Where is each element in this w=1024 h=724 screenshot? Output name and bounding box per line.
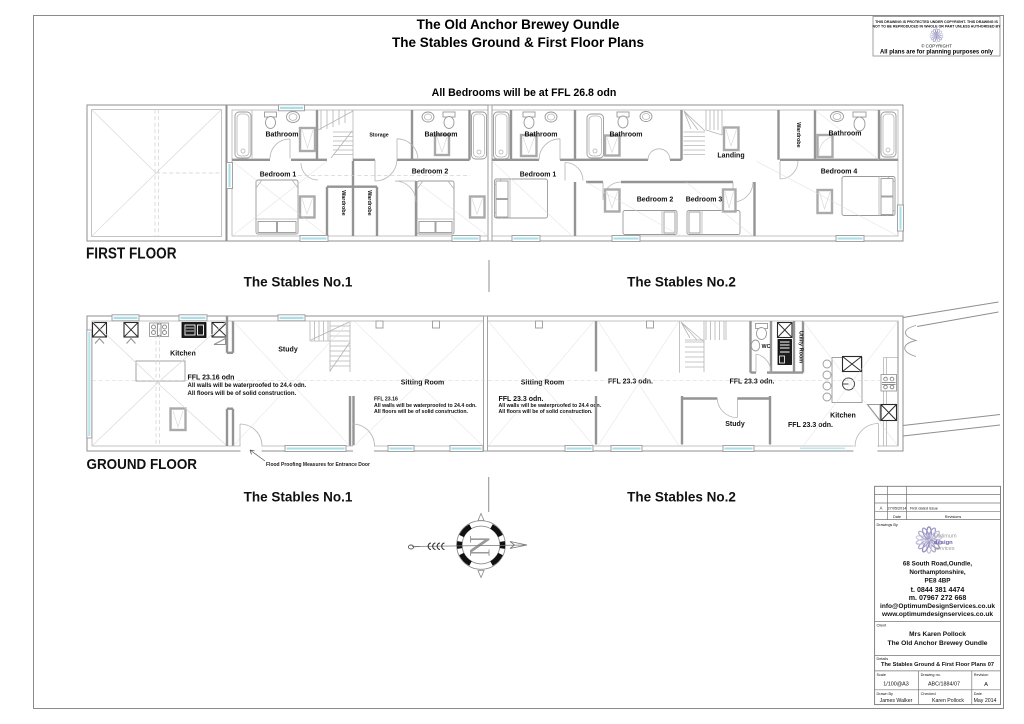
svg-text:Optimum: Optimum <box>934 534 957 540</box>
svg-text:Mrs Karen Pollock: Mrs Karen Pollock <box>909 631 966 638</box>
svg-text:Bedroom 3: Bedroom 3 <box>686 197 723 204</box>
svg-text:Checked: Checked <box>921 692 936 696</box>
svg-text:The Stables Ground & First Flo: The Stables Ground & First Floor Plans <box>392 35 644 50</box>
svg-text:27/05/2014: 27/05/2014 <box>887 506 906 510</box>
svg-text:FFL 23.3 odn.: FFL 23.3 odn. <box>730 379 775 386</box>
svg-text:All floors will be of solid co: All floors will be of solid construction… <box>499 409 594 415</box>
svg-text:Flood Proofing Measures for En: Flood Proofing Measures for Entrance Doo… <box>266 462 370 468</box>
svg-text:Bathroom: Bathroom <box>609 132 642 139</box>
svg-text:FIRST FLOOR: FIRST FLOOR <box>86 246 177 263</box>
svg-text:PE8 4BP: PE8 4BP <box>925 578 951 585</box>
svg-text:Bedroom 1: Bedroom 1 <box>260 172 297 179</box>
svg-text:Northamptonshire,: Northamptonshire, <box>909 569 966 576</box>
svg-text:The Stables No.1: The Stables No.1 <box>244 490 353 505</box>
svg-text:services: services <box>934 546 955 552</box>
svg-text:Utility Room: Utility Room <box>798 331 804 363</box>
svg-text:Landing: Landing <box>717 153 744 160</box>
svg-text:The Old Anchor Brewey Oundle: The Old Anchor Brewey Oundle <box>888 640 988 647</box>
svg-text:All walls will be waterproofed: All walls will be waterproofed to 24.4 o… <box>499 403 602 409</box>
svg-text:May 2014: May 2014 <box>974 698 997 704</box>
svg-text:Bathroom: Bathroom <box>828 131 861 138</box>
svg-text:Study: Study <box>725 421 745 428</box>
svg-text:Bedroom 2: Bedroom 2 <box>637 197 674 204</box>
svg-text:All walls will be waterproofed: All walls will be waterproofed to 24.4 o… <box>188 383 307 389</box>
svg-text:Drawings By: Drawings By <box>877 523 898 527</box>
svg-text:Wardrobe: Wardrobe <box>340 190 346 215</box>
svg-text:WC: WC <box>762 344 771 350</box>
svg-text:1/100@A3: 1/100@A3 <box>883 682 909 688</box>
svg-text:All Bedrooms will be at FFL 26: All Bedrooms will be at FFL 26.8 odn <box>432 87 617 99</box>
svg-text:Storage: Storage <box>369 133 388 139</box>
svg-text:The Old Anchor Brewey Oundle: The Old Anchor Brewey Oundle <box>417 17 620 32</box>
svg-text:Bathroom: Bathroom <box>265 132 298 139</box>
svg-text:First dated issue: First dated issue <box>910 506 938 510</box>
svg-text:The Stables No.1: The Stables No.1 <box>244 275 353 290</box>
svg-text:GROUND FLOOR: GROUND FLOOR <box>87 457 198 473</box>
svg-text:ABC/1884/07: ABC/1884/07 <box>928 682 960 688</box>
svg-text:Wardrobe: Wardrobe <box>366 190 372 215</box>
svg-text:A: A <box>880 505 883 510</box>
svg-text:THIS DRAWING IS PROTECTED UNDE: THIS DRAWING IS PROTECTED UNDER COPYRIGH… <box>875 20 998 24</box>
svg-text:The Stables No.2: The Stables No.2 <box>627 490 736 505</box>
svg-text:Date: Date <box>893 515 901 519</box>
svg-text:68 South Road,Oundle,: 68 South Road,Oundle, <box>903 561 973 568</box>
svg-text:FFL 23.16: FFL 23.16 <box>374 397 398 403</box>
svg-text:m. 07967 272 668: m. 07967 272 668 <box>909 594 967 602</box>
svg-text:Wardrobe: Wardrobe <box>795 122 801 147</box>
svg-text:Client: Client <box>877 624 888 628</box>
svg-text:Drawing no.: Drawing no. <box>921 673 941 677</box>
svg-text:Revision: Revision <box>974 673 989 677</box>
svg-text:t. 0844 381 4474: t. 0844 381 4474 <box>911 586 965 594</box>
svg-text:Date: Date <box>974 692 982 696</box>
svg-text:A: A <box>984 682 988 688</box>
svg-text:All plans are for planning pur: All plans are for planning purposes only <box>880 50 994 56</box>
svg-text:All walls will be waterproofed: All walls will be waterproofed to 24.4 o… <box>374 403 477 409</box>
svg-text:© COPYRIGHT: © COPYRIGHT <box>921 44 952 49</box>
svg-text:Scale: Scale <box>877 673 887 677</box>
svg-text:The Stables No.2: The Stables No.2 <box>627 275 736 290</box>
svg-text:The Stables Ground & First Flo: The Stables Ground & First Floor Plans 0… <box>881 662 995 668</box>
svg-text:Karen Pollock: Karen Pollock <box>932 698 964 704</box>
svg-text:Study: Study <box>278 347 298 354</box>
svg-text:All floors will be of solid co: All floors will be of solid construction… <box>374 409 469 415</box>
svg-text:Bedroom 4: Bedroom 4 <box>821 169 858 176</box>
svg-text:Bathroom: Bathroom <box>524 132 557 139</box>
svg-text:FFL 23.3 odn.: FFL 23.3 odn. <box>608 379 653 386</box>
svg-text:Bedroom 1: Bedroom 1 <box>520 172 557 179</box>
svg-text:NOT TO BE REPRODUCED IN WHOLE: NOT TO BE REPRODUCED IN WHOLE OR PART UN… <box>872 25 1001 29</box>
svg-text:Kitchen: Kitchen <box>830 413 856 420</box>
svg-text:Revisions: Revisions <box>945 515 962 519</box>
svg-text:info@OptimumDesignServices.co.: info@OptimumDesignServices.co.uk <box>880 603 995 610</box>
svg-text:James Walker: James Walker <box>880 698 913 704</box>
svg-text:Bedroom 2: Bedroom 2 <box>412 169 449 176</box>
svg-text:Kitchen: Kitchen <box>170 351 196 358</box>
svg-text:FFL 23.3 odn.: FFL 23.3 odn. <box>788 422 833 429</box>
svg-text:Drawn By: Drawn By <box>877 692 894 696</box>
svg-text:Details: Details <box>877 657 889 661</box>
svg-text:www.optimumdesignservices.co.u: www.optimumdesignservices.co.uk <box>881 611 993 618</box>
svg-text:Bathroom: Bathroom <box>424 132 457 139</box>
